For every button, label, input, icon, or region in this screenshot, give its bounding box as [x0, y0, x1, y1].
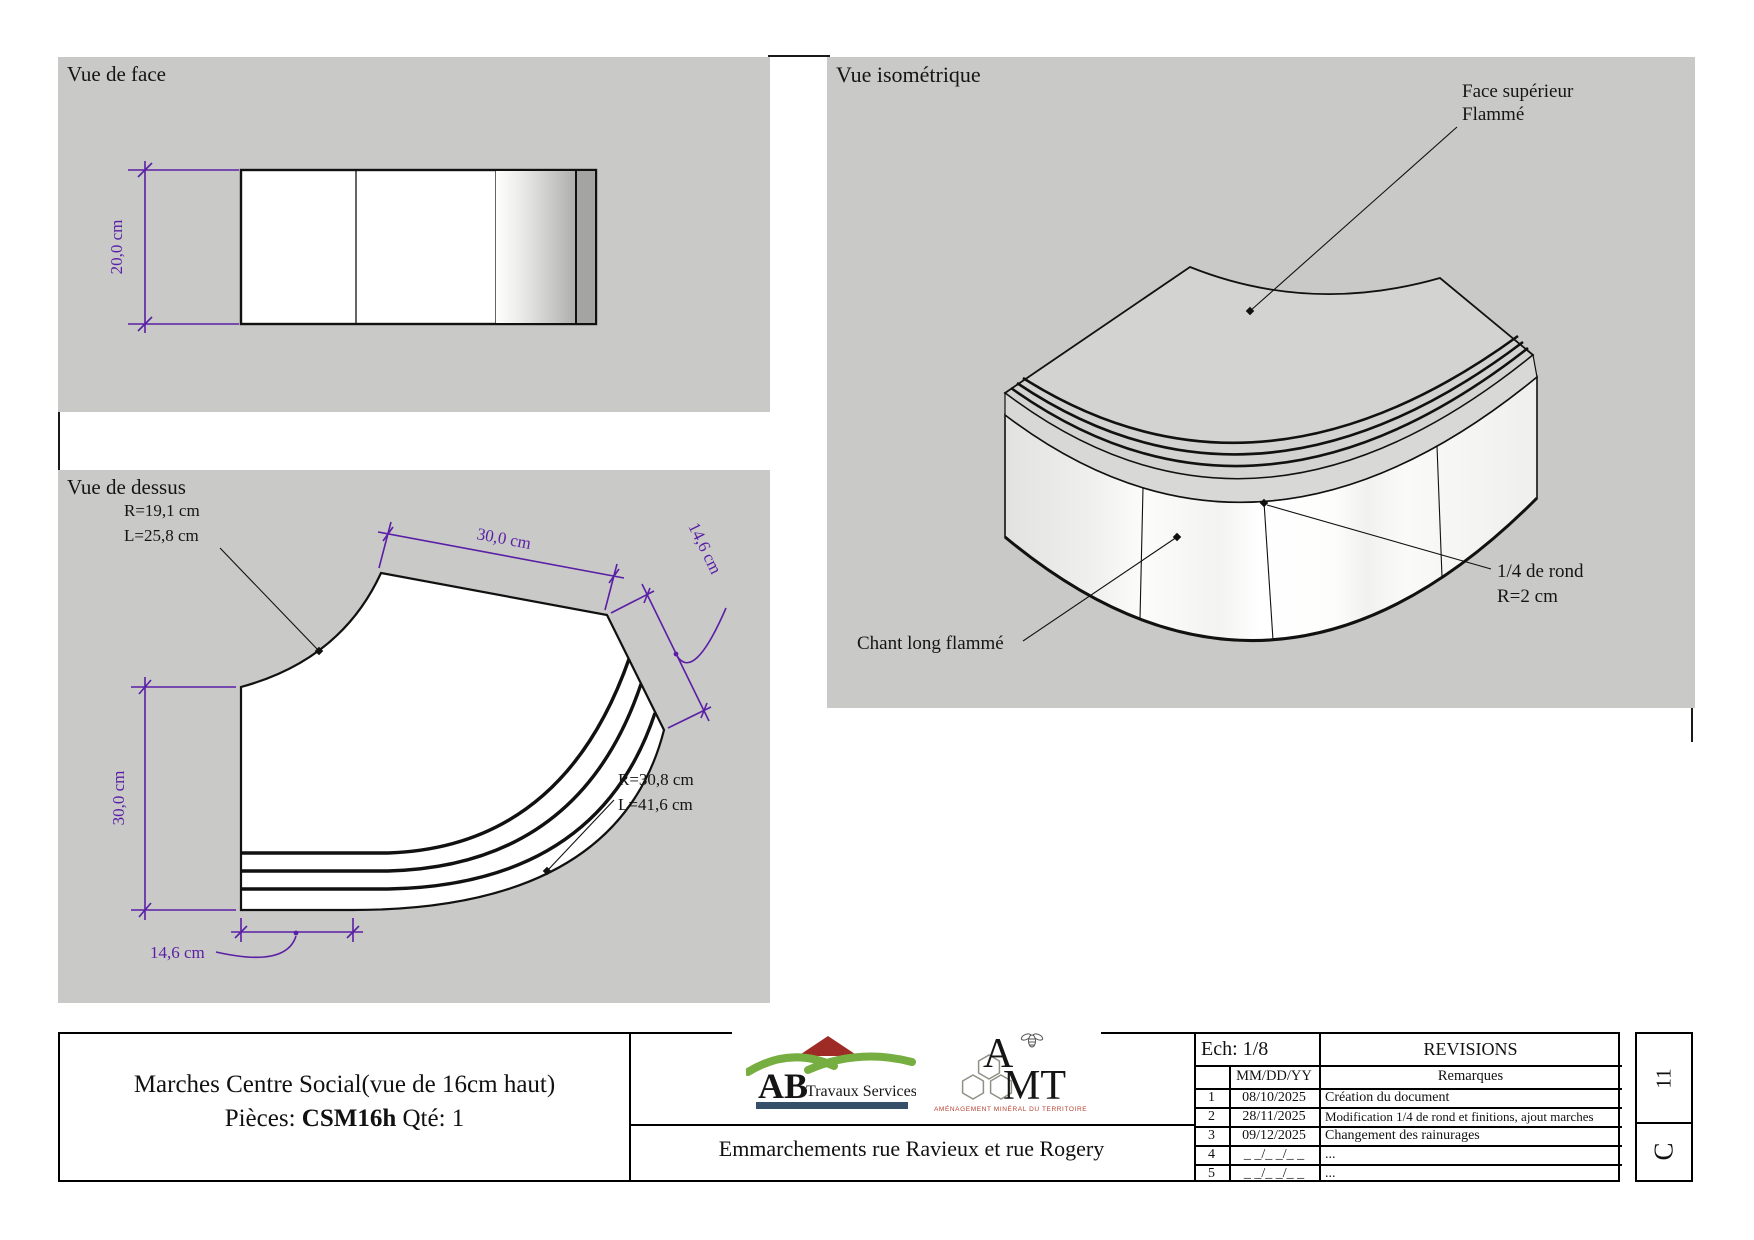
front-view-title: Vue de face	[67, 62, 166, 87]
right-dim-label: 14,6 cm	[684, 519, 725, 577]
nose-label-line2: R=2 cm	[1497, 586, 1558, 607]
sheet-number-box: 11 C	[1635, 1032, 1693, 1182]
frame-line-artifact	[58, 412, 60, 470]
left-dim-label: 30,0 cm	[109, 771, 128, 826]
revisions-title: REVISIONS	[1319, 1034, 1622, 1065]
revision-date: 28/11/2025	[1229, 1107, 1319, 1126]
amt-logo-block: A MT AMÉNAGEMENT MINÉRAL DU TERRITOIRE	[934, 1027, 1087, 1113]
piece-code: CSM16h	[302, 1105, 396, 1132]
revision-date: _ _/_ _/_ _	[1229, 1164, 1319, 1183]
amt-logo: A MT	[955, 1027, 1067, 1105]
step-plan-outline	[241, 573, 664, 910]
part-piece-line: Pièces: CSM16h Qté: 1	[60, 1102, 629, 1136]
top-face-annotation: Face supérieur Flammé	[1246, 81, 1574, 315]
revision-num: 2	[1194, 1107, 1229, 1126]
revision-remark: Création du document	[1325, 1088, 1620, 1107]
front-view-panel: Vue de face	[58, 57, 770, 412]
date-format-header: MM/DD/YY	[1229, 1065, 1319, 1088]
top-view-panel: Vue de dessus 30,0 cm	[58, 470, 770, 1003]
left-dimension	[131, 677, 236, 920]
edge-label: Chant long flammé	[857, 633, 1004, 654]
ab-travaux-services-logo: AB Travaux Services	[746, 1028, 916, 1112]
outer-radius-line2: L=41,6 cm	[618, 795, 693, 814]
outer-radius-line1: R=30,8 cm	[618, 770, 694, 789]
isometric-drawing: Face supérieur Flammé 1/4 de rond R=2 cm…	[827, 57, 1695, 708]
inner-radius-line2: L=25,8 cm	[124, 526, 199, 545]
remarks-header: Remarques	[1319, 1065, 1622, 1088]
revision-remark: ...	[1325, 1164, 1620, 1183]
revision-num: 3	[1194, 1126, 1229, 1145]
drawing-sheet: Vue de face	[0, 0, 1754, 1240]
top-face-label-line2: Flammé	[1462, 104, 1524, 125]
isometric-view-panel: Vue isométrique	[827, 57, 1695, 708]
amt-letters-mt: MT	[1003, 1063, 1066, 1105]
top-view-drawing: 30,0 cm 14,6 cm 30,0 cm	[58, 470, 770, 1003]
revision-num: 4	[1194, 1145, 1229, 1164]
leader-line	[220, 548, 319, 651]
inner-radius-annotation: R=19,1 cm L=25,8 cm	[124, 501, 323, 655]
revision-date: _ _/_ _/_ _	[1229, 1145, 1319, 1164]
logo-underline-bar	[756, 1102, 908, 1109]
top-view-title: Vue de dessus	[67, 475, 186, 500]
bee-icon	[1020, 1033, 1043, 1047]
part-title: Marches Centre Social(vue de 16cm haut)	[60, 1068, 629, 1102]
end-band	[577, 171, 595, 323]
dim-leader-curve	[677, 608, 726, 663]
sheet-number: 11	[1637, 1034, 1691, 1122]
front-height-dim-label: 20,0 cm	[107, 220, 126, 275]
revision-remark: ...	[1325, 1145, 1620, 1164]
dim-leader-curve	[216, 936, 296, 957]
ab-logo-subtext: Travaux Services	[806, 1083, 916, 1100]
step-front-outline	[241, 170, 596, 324]
nose-label-line1: 1/4 de rond	[1497, 561, 1584, 582]
amt-tagline: AMÉNAGEMENT MINÉRAL DU TERRITOIRE	[934, 1106, 1087, 1113]
revision-num: 5	[1194, 1164, 1229, 1183]
part-identification: Marches Centre Social(vue de 16cm haut) …	[60, 1068, 629, 1136]
ab-logo-text: AB	[758, 1066, 808, 1106]
frame-line-artifact	[1691, 708, 1693, 742]
height-dimension	[128, 161, 239, 333]
revision-num: 1	[1194, 1088, 1229, 1107]
inner-radius-line1: R=19,1 cm	[124, 501, 200, 520]
bottom-dim-label: 14,6 cm	[150, 943, 205, 962]
revision-remark: Changement des rainurages	[1325, 1126, 1620, 1145]
revision-date: 09/12/2025	[1229, 1126, 1319, 1145]
shaded-zone	[496, 171, 576, 323]
frame-line-artifact	[768, 55, 830, 57]
company-logos: AB Travaux Services A MT	[732, 1018, 1101, 1122]
revision-remark: Modification 1/4 de rond et finitions, a…	[1325, 1107, 1620, 1126]
scale-label: Ech: 1/8	[1201, 1034, 1319, 1065]
top-face-label-line1: Face supérieur	[1462, 81, 1574, 102]
roof-icon	[798, 1036, 858, 1056]
project-name: Emmarchements rue Ravieux et rue Rogery	[629, 1136, 1194, 1162]
iso-view-title: Vue isométrique	[836, 62, 981, 88]
sheet-letter: C	[1637, 1122, 1691, 1180]
bottom-dimension	[216, 918, 363, 957]
front-view-drawing: 20,0 cm	[58, 57, 770, 412]
revision-date: 08/10/2025	[1229, 1088, 1319, 1107]
top-dim-label: 30,0 cm	[475, 524, 532, 553]
title-block: Marches Centre Social(vue de 16cm haut) …	[58, 1032, 1620, 1182]
